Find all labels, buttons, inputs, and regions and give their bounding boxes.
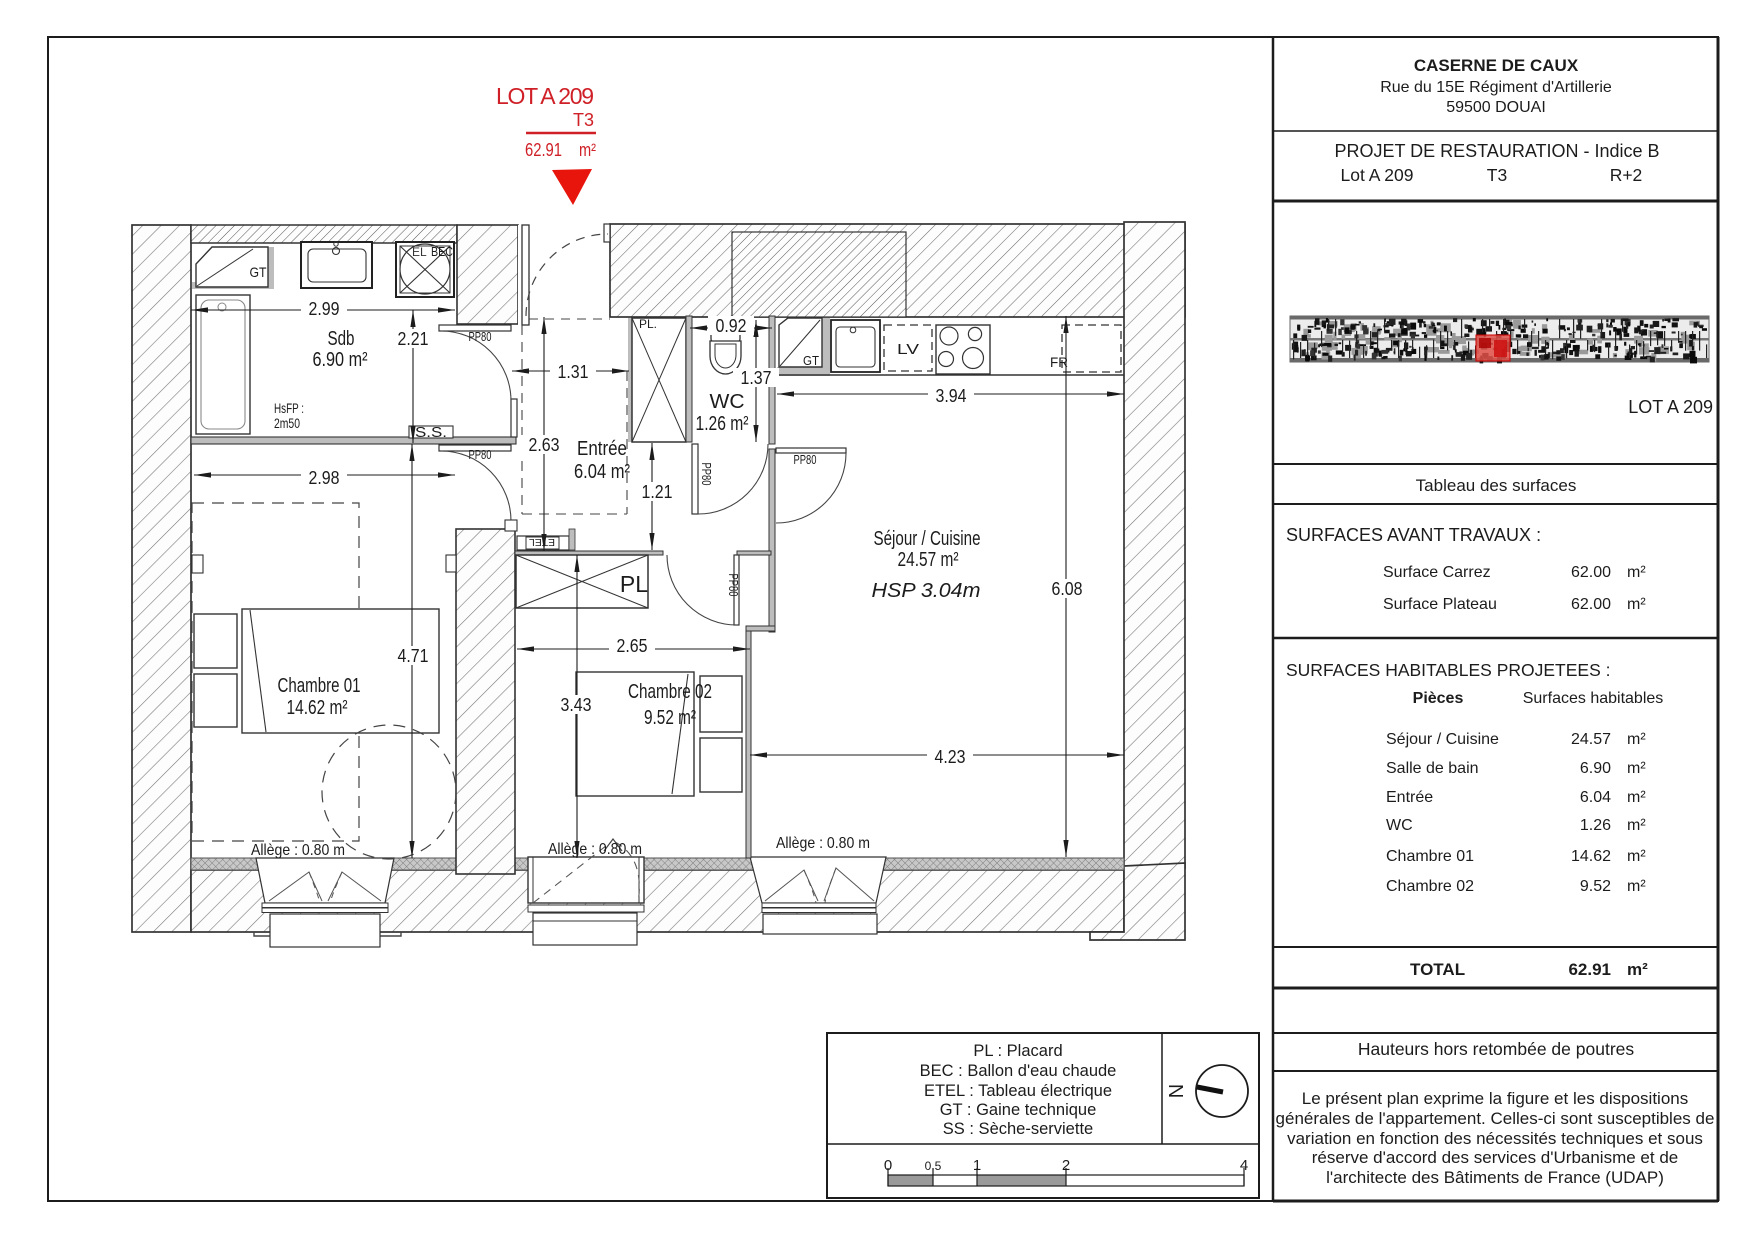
- svg-text:WC: WC: [710, 391, 745, 413]
- svg-text:Lot A 209: Lot A 209: [1341, 165, 1414, 185]
- svg-text:m²: m²: [579, 140, 596, 160]
- svg-text:Chambre 01: Chambre 01: [278, 675, 361, 697]
- svg-text:Entrée: Entrée: [1386, 789, 1433, 806]
- svg-text:Surface Carrez: Surface Carrez: [1383, 564, 1491, 581]
- svg-text:24.57: 24.57: [1571, 731, 1611, 748]
- svg-text:6.08: 6.08: [1052, 579, 1083, 599]
- svg-text:1.31: 1.31: [558, 362, 589, 382]
- svg-text:Hauteurs hors retombée de pout: Hauteurs hors retombée de poutres: [1358, 1039, 1635, 1059]
- svg-text:Séjour / Cuisine: Séjour / Cuisine: [874, 528, 981, 550]
- svg-text:T3: T3: [1487, 165, 1507, 185]
- svg-text:m²: m²: [1627, 817, 1646, 834]
- svg-text:PP80: PP80: [726, 574, 741, 597]
- svg-text:PL.: PL.: [639, 317, 657, 331]
- svg-text:6.90 m²: 6.90 m²: [313, 349, 368, 371]
- svg-text:ETEL: ETEL: [529, 536, 555, 547]
- svg-text:0.92: 0.92: [716, 316, 747, 336]
- svg-text:T3: T3: [573, 110, 594, 130]
- svg-text:Salle de bain: Salle de bain: [1386, 760, 1479, 777]
- svg-text:Pièces: Pièces: [1413, 690, 1464, 707]
- svg-text:PP80: PP80: [469, 447, 492, 462]
- svg-text:1.21: 1.21: [642, 482, 673, 502]
- svg-text:Chambre 01: Chambre 01: [1386, 848, 1474, 865]
- svg-text:variation en fonction des néce: variation en fonction des nécessités tec…: [1287, 1129, 1703, 1148]
- svg-text:GT: GT: [803, 353, 819, 368]
- svg-text:4.71: 4.71: [398, 646, 429, 666]
- svg-text:m²: m²: [1627, 960, 1648, 979]
- svg-text:PP80: PP80: [794, 452, 817, 467]
- svg-text:14.62: 14.62: [1571, 848, 1611, 865]
- svg-text:HsFP :: HsFP :: [274, 401, 304, 416]
- svg-text:PROJET DE RESTAURATION - Indic: PROJET DE RESTAURATION - Indice B: [1334, 141, 1659, 161]
- svg-text:1.26 m²: 1.26 m²: [696, 413, 749, 435]
- svg-text:62.00: 62.00: [1571, 564, 1611, 581]
- svg-text:2.21: 2.21: [398, 329, 429, 349]
- svg-text:PP80: PP80: [469, 329, 492, 344]
- svg-text:6.90: 6.90: [1580, 760, 1611, 777]
- svg-text:ETEL : Tableau électrique: ETEL : Tableau électrique: [924, 1082, 1112, 1100]
- svg-text:62.91: 62.91: [525, 140, 562, 160]
- svg-text:Le présent plan exprime la fig: Le présent plan exprime la figure et les…: [1302, 1089, 1689, 1108]
- svg-text:générales de l'appartement. Ce: générales de l'appartement. Celles-ci so…: [1276, 1109, 1715, 1128]
- svg-text:59500 DOUAI: 59500 DOUAI: [1446, 99, 1546, 116]
- svg-text:2m50: 2m50: [274, 416, 300, 431]
- svg-text:FR: FR: [1050, 354, 1068, 370]
- svg-text:réserve d'accord des services: réserve d'accord des services d'Urbanism…: [1312, 1148, 1679, 1167]
- svg-text:9.52: 9.52: [1580, 878, 1611, 895]
- svg-text:62.91: 62.91: [1568, 960, 1611, 979]
- svg-text:Allège : 0.80 m: Allège : 0.80 m: [776, 835, 870, 852]
- svg-text:BEC: BEC: [431, 244, 453, 259]
- svg-text:Chambre 02: Chambre 02: [1386, 878, 1474, 895]
- svg-text:2.65: 2.65: [617, 636, 648, 656]
- svg-text:m²: m²: [1627, 878, 1646, 895]
- svg-text:1.37: 1.37: [741, 368, 772, 388]
- svg-text:Surface Plateau: Surface Plateau: [1383, 596, 1497, 613]
- svg-text:m²: m²: [1627, 848, 1646, 865]
- svg-text:m²: m²: [1627, 731, 1646, 748]
- svg-text:m²: m²: [1627, 596, 1646, 613]
- svg-text:3.43: 3.43: [561, 695, 592, 715]
- svg-text:Surfaces habitables: Surfaces habitables: [1523, 690, 1664, 707]
- svg-text:2.63: 2.63: [529, 435, 560, 455]
- svg-text:N: N: [1166, 1084, 1188, 1098]
- svg-text:PL : Placard: PL : Placard: [973, 1042, 1062, 1060]
- svg-text:Allège : 0.80 m: Allège : 0.80 m: [251, 842, 345, 859]
- svg-text:R+2: R+2: [1610, 165, 1643, 185]
- svg-text:PL: PL: [620, 571, 648, 597]
- svg-text:S.S.: S.S.: [415, 424, 447, 441]
- svg-text:PP80: PP80: [699, 463, 714, 486]
- svg-text:m²: m²: [1627, 564, 1646, 581]
- svg-text:HSP 3.04m: HSP 3.04m: [872, 580, 981, 602]
- svg-text:SURFACES HABITABLES PROJETEES: SURFACES HABITABLES PROJETEES :: [1286, 660, 1611, 680]
- svg-text:6.04: 6.04: [1580, 789, 1611, 806]
- svg-text:LV: LV: [897, 341, 919, 358]
- svg-text:2.98: 2.98: [309, 468, 340, 488]
- svg-text:GT: GT: [250, 264, 267, 280]
- svg-text:GT : Gaine technique: GT : Gaine technique: [940, 1101, 1097, 1119]
- svg-text:m²: m²: [1627, 760, 1646, 777]
- svg-text:24.57 m²: 24.57 m²: [898, 549, 959, 571]
- svg-text:Entrée: Entrée: [577, 438, 627, 460]
- svg-text:3.94: 3.94: [936, 386, 967, 406]
- svg-text:LOT A 209: LOT A 209: [1628, 397, 1713, 417]
- svg-text:Séjour / Cuisine: Séjour / Cuisine: [1386, 731, 1499, 748]
- svg-text:WC: WC: [1386, 817, 1413, 834]
- svg-text:TOTAL: TOTAL: [1410, 960, 1465, 979]
- svg-text:EL: EL: [412, 245, 427, 259]
- svg-text:4.23: 4.23: [935, 747, 966, 767]
- svg-text:CASERNE DE CAUX: CASERNE DE CAUX: [1414, 56, 1579, 75]
- svg-text:2.99: 2.99: [309, 299, 340, 319]
- svg-text:Allège : 0.80 m: Allège : 0.80 m: [548, 841, 642, 858]
- svg-text:9.52 m²: 9.52 m²: [644, 707, 696, 729]
- svg-text:1.26: 1.26: [1580, 817, 1611, 834]
- svg-text:l'architecte des Bâtiments de: l'architecte des Bâtiments de France (UD…: [1326, 1168, 1664, 1187]
- svg-text:SS : Sèche-serviette: SS : Sèche-serviette: [943, 1120, 1093, 1138]
- svg-text:BEC : Ballon d'eau chaude: BEC : Ballon d'eau chaude: [920, 1062, 1117, 1080]
- svg-text:SURFACES AVANT TRAVAUX :: SURFACES AVANT TRAVAUX :: [1286, 525, 1541, 545]
- svg-text:LOT A 209: LOT A 209: [496, 83, 594, 109]
- svg-text:Sdb: Sdb: [328, 328, 355, 350]
- svg-text:6.04 m²: 6.04 m²: [574, 461, 630, 483]
- svg-text:Tableau des surfaces: Tableau des surfaces: [1416, 476, 1577, 495]
- svg-text:62.00: 62.00: [1571, 596, 1611, 613]
- svg-text:Chambre 02: Chambre 02: [628, 681, 712, 703]
- svg-text:14.62 m²: 14.62 m²: [287, 697, 348, 719]
- svg-text:m²: m²: [1627, 789, 1646, 806]
- svg-text:Rue du 15E Régiment d'Artiller: Rue du 15E Régiment d'Artillerie: [1380, 79, 1612, 96]
